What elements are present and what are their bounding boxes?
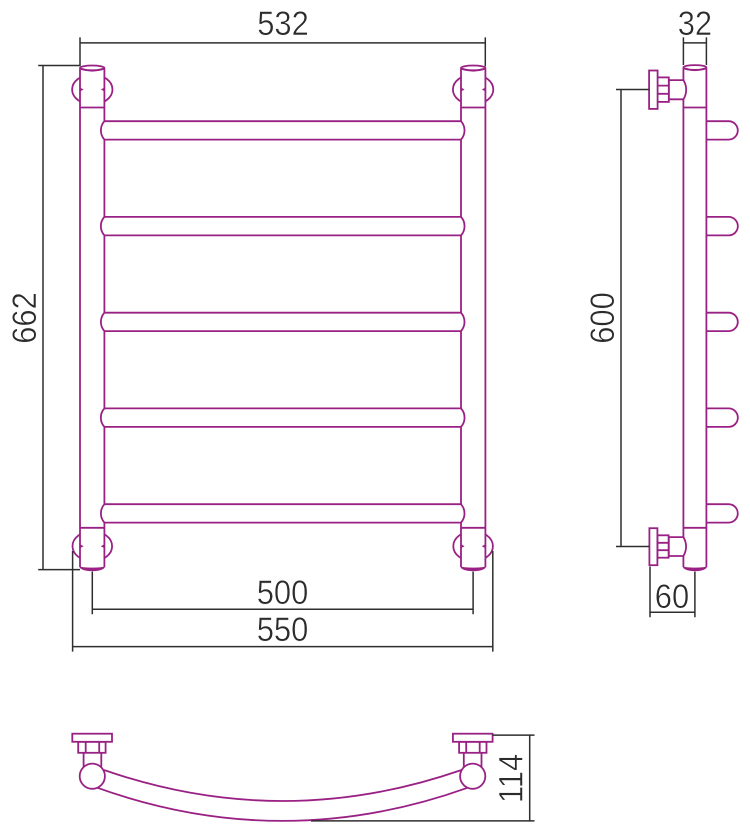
svg-text:532: 532 bbox=[257, 5, 309, 43]
svg-text:114: 114 bbox=[492, 754, 530, 803]
svg-text:550: 550 bbox=[257, 610, 309, 648]
svg-text:500: 500 bbox=[257, 574, 309, 612]
svg-text:600: 600 bbox=[584, 292, 622, 344]
svg-text:32: 32 bbox=[678, 5, 712, 43]
svg-text:662: 662 bbox=[6, 292, 44, 344]
svg-text:60: 60 bbox=[655, 578, 689, 616]
